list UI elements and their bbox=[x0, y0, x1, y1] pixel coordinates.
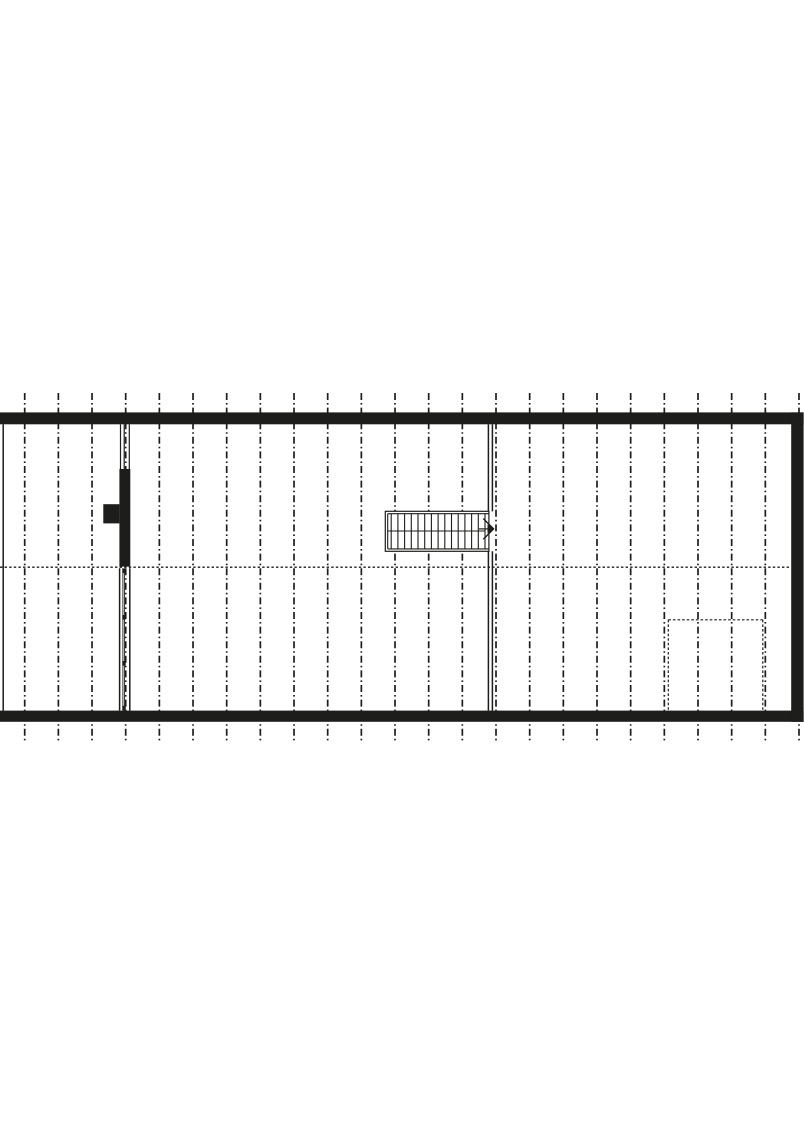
top-wall bbox=[0, 412, 804, 424]
lower-wall-joint-tick bbox=[122, 615, 125, 620]
dashed-recess-outline bbox=[668, 620, 763, 711]
lower-wall-joint-tick bbox=[122, 661, 125, 666]
stair bbox=[385, 511, 494, 551]
lower-wall-joint-tick bbox=[122, 706, 125, 711]
lower-wall-joint-tick bbox=[122, 569, 125, 574]
interior-wall bbox=[488, 424, 492, 710]
chimney-tab bbox=[103, 504, 119, 523]
bottom-wall bbox=[0, 711, 804, 722]
right-wall bbox=[791, 412, 803, 721]
chimney-mass bbox=[119, 469, 130, 567]
floor-plan-drawing bbox=[0, 0, 804, 1136]
floor-plan-page bbox=[0, 0, 804, 1136]
